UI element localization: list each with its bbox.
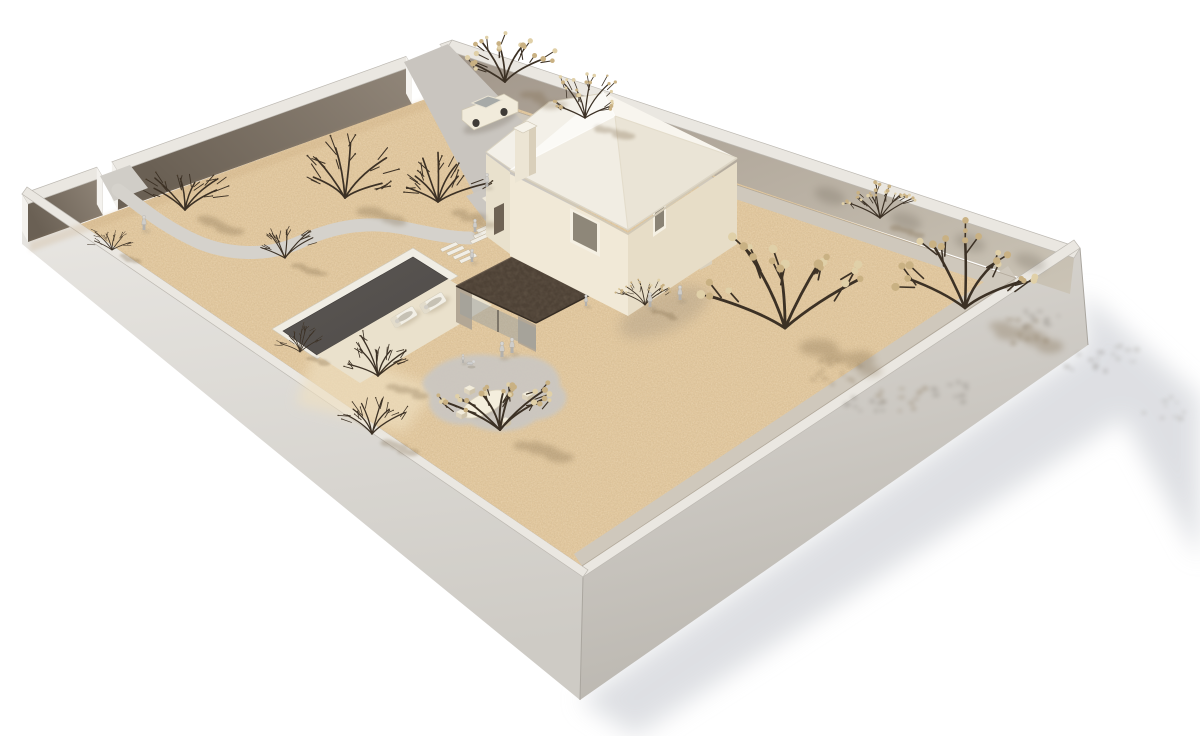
entrance-door (494, 203, 504, 235)
chimney (529, 123, 536, 176)
person-shadow (142, 230, 151, 234)
person-head (648, 292, 652, 296)
site-plan-3d-render (0, 0, 1200, 736)
person-legs (679, 295, 682, 300)
car-wheel (472, 119, 479, 127)
person-head (510, 338, 514, 342)
person-legs (649, 302, 652, 307)
person-legs (510, 347, 513, 353)
person-head (678, 285, 682, 289)
person-shadow (510, 353, 520, 357)
person-head (485, 173, 488, 176)
person-head (500, 342, 504, 346)
render-viewport (0, 0, 1200, 736)
person-head (142, 215, 146, 219)
person-shadow (678, 300, 687, 304)
person-shadow (462, 363, 468, 365)
person-shadow (648, 307, 657, 311)
person-head (473, 219, 476, 222)
dog-body (467, 362, 473, 365)
person-head (585, 295, 588, 298)
person-shadow (470, 262, 478, 265)
person-legs (462, 360, 464, 363)
person-shadow (473, 232, 481, 235)
dog-shadow (468, 366, 476, 369)
car-wheel (500, 108, 507, 116)
person-shadow (584, 306, 591, 309)
person-shadow (485, 187, 494, 190)
person-legs (585, 302, 587, 306)
person-head (462, 354, 464, 356)
person-head (470, 249, 473, 252)
dog-head (472, 360, 475, 363)
person-shadow (500, 357, 510, 361)
person-legs (500, 351, 503, 357)
person-legs (143, 225, 146, 230)
person-legs (471, 257, 474, 262)
person-legs (486, 182, 489, 187)
person-legs (474, 227, 477, 232)
